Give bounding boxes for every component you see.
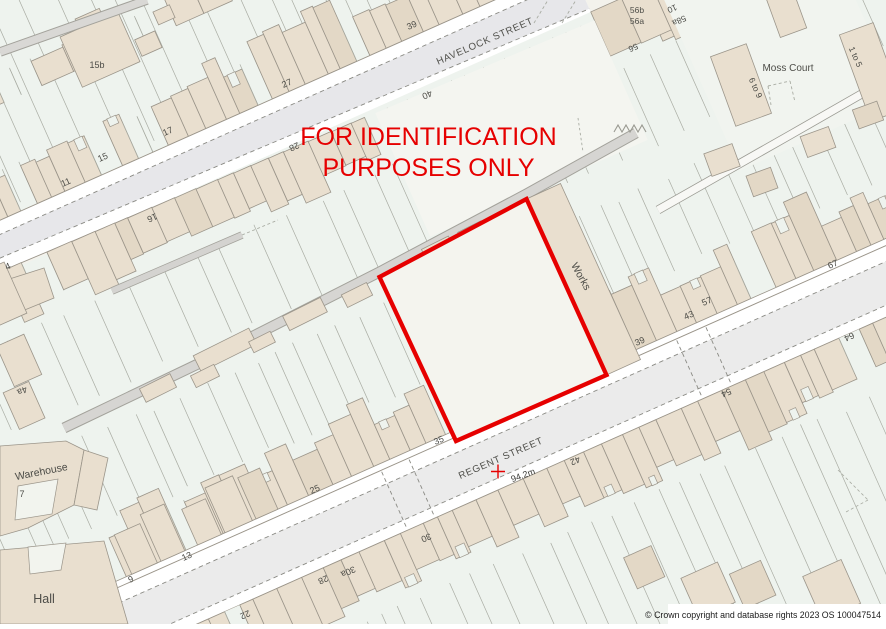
svg-text:PURPOSES ONLY: PURPOSES ONLY: [322, 154, 534, 182]
svg-text:56a: 56a: [630, 16, 644, 26]
svg-text:© Crown copyright and database: © Crown copyright and database rights 20…: [645, 610, 881, 620]
svg-text:7: 7: [19, 489, 24, 499]
svg-text:56b: 56b: [630, 5, 644, 15]
svg-text:Moss Court: Moss Court: [762, 63, 813, 74]
svg-text:Hall: Hall: [33, 592, 55, 606]
svg-text:FOR IDENTIFICATION: FOR IDENTIFICATION: [300, 123, 556, 151]
svg-text:15b: 15b: [89, 60, 104, 70]
